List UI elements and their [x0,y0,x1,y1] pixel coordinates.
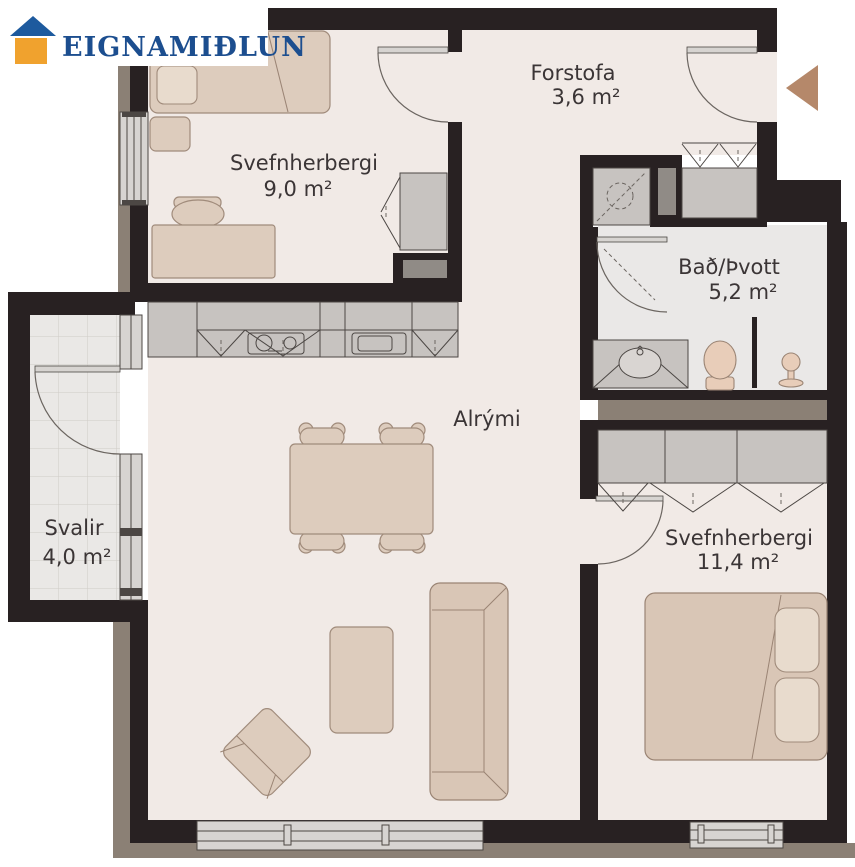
label-svalir: Svalir [45,516,104,540]
bedroom1-window [120,112,148,205]
logo-brand-text: EIGNAMIÐLUN [62,32,307,63]
label-bathroom-area: 5,2 m² [709,280,778,304]
label-bedroom1: Svefnherbergi [230,151,378,175]
label-forstofa: Forstofa [530,61,615,85]
bedroom2-window [690,822,783,848]
dining-chair [299,532,345,553]
coffee-table [330,627,393,733]
bedroom1-opening [448,52,462,122]
entrance-opening [757,52,777,122]
duct-inset [403,260,447,278]
entrance-arrow-icon [786,65,818,111]
label-forstofa-area: 3,6 m² [552,85,621,109]
floor-plan-drawing: Forstofa 3,6 m² Svefnherbergi 9,0 m² Bað… [0,0,855,867]
label-alrymi: Alrými [453,407,521,431]
label-bedroom2-area: 11,4 m² [697,550,779,574]
bedroom2-opening [580,499,598,564]
balcony-glass-wall [120,315,142,600]
brand-logo: EIGNAMIÐLUN [0,0,307,66]
nightstand [150,117,190,151]
double-bed [645,593,827,760]
dining-table [290,444,433,534]
kitchen-counter [148,302,458,357]
vanity-sink-icon [593,340,688,388]
toilet-icon [704,341,736,390]
room-floor-alrymi [148,302,580,820]
label-bathroom: Bað/Þvott [678,255,780,279]
label-svalir-area: 4,0 m² [43,545,112,569]
bathroom-partition-wall [752,317,757,388]
utility-shaft [658,168,676,215]
living-room-window [197,821,483,850]
sofa [430,583,508,800]
room-floor-corridor [462,122,580,302]
label-bedroom1-area: 9,0 m² [264,177,333,201]
shower-icon [593,168,650,225]
label-bedroom2: Svefnherbergi [665,526,813,550]
dining-chair [379,532,425,553]
horizontal-shaft [598,400,827,420]
floor-plan-page: Forstofa 3,6 m² Svefnherbergi 9,0 m² Bað… [0,0,855,867]
